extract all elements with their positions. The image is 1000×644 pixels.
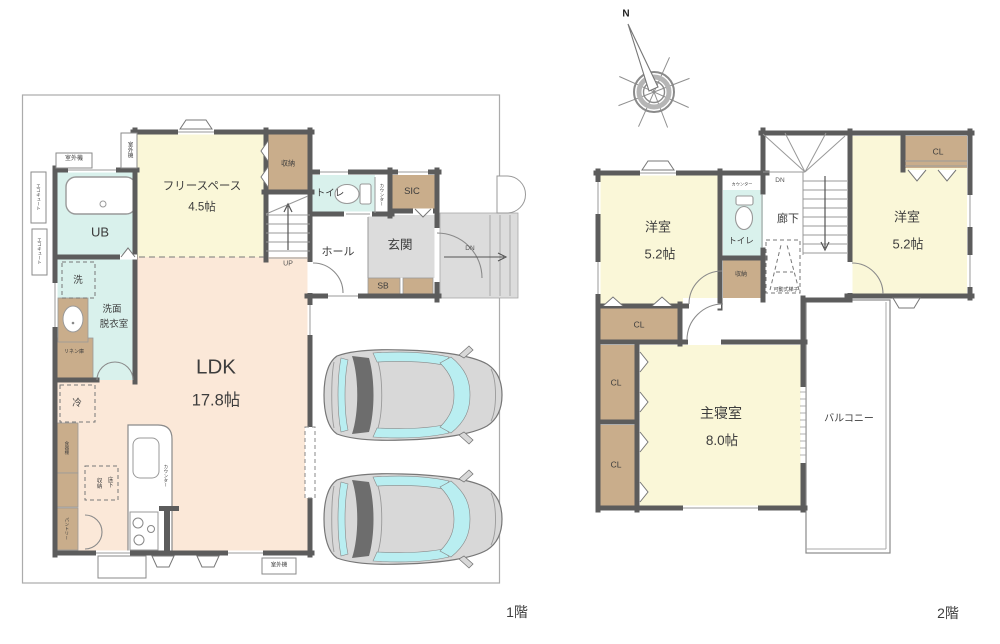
room-label-toilet-1f: トイレ: [316, 188, 345, 200]
counter-label-toilet-1f: カウンター: [379, 184, 385, 207]
linen-cabinet: [57, 338, 93, 380]
counter-label-toilet-2f: カウンター: [732, 181, 753, 186]
cl-label-horizontal: CL: [634, 319, 645, 330]
side-cabinet: [57, 473, 78, 507]
room-label-sb: SB: [377, 280, 388, 291]
room-label-hall: ホール: [322, 245, 355, 259]
compass: [619, 24, 690, 128]
fridge-label: 冷: [72, 398, 82, 410]
toilet-tank-1f: [360, 184, 371, 204]
room-size-master-bedroom: 8.0帖: [706, 432, 738, 450]
pantry-label: パントリー: [64, 518, 70, 541]
dn-label-stairs-2f: DN: [775, 177, 784, 185]
dn-label-porch: DN: [465, 245, 474, 253]
up-label-stairs-1f: UP: [283, 259, 293, 268]
room-size-west-bedroom: 5.2帖: [644, 247, 675, 264]
balcony: [806, 300, 890, 553]
floor-plan-page: 室外機 室外機 エコキュート エコキュート UB フリースペース 4.5帖 収納…: [0, 0, 1000, 644]
room-label-entrance: 玄関: [387, 237, 412, 253]
floor-plan-canvas: [0, 0, 1000, 644]
compass-north-label: N: [622, 8, 629, 21]
entrance-ornament: [497, 176, 526, 213]
floor-label-2f: 2階: [937, 604, 959, 622]
room-free-space: [135, 134, 266, 257]
counter-label-kitchen: カウンター: [163, 465, 169, 488]
room-size-east-bedroom: 5.2帖: [892, 237, 923, 254]
washroom-label-2: 脱衣室: [100, 319, 129, 331]
back-step: [98, 556, 146, 578]
kitchen-sink: [133, 438, 159, 478]
ecocute-label: エコキュート: [36, 184, 42, 211]
washer-label: 洗: [73, 275, 83, 287]
linen-label: リネン庫: [64, 349, 84, 356]
outdoor-unit-label: 室外機: [65, 156, 83, 164]
outdoor-unit-label: 室外機: [125, 142, 132, 159]
shoe-box-2: [403, 278, 433, 294]
room-label-free-space: フリースペース: [163, 180, 242, 195]
room-label-closet-1f: 収納: [281, 159, 295, 168]
parked-car-2: [324, 470, 502, 568]
washbasin-bowl: [63, 306, 83, 332]
room-label-toilet-2f: トイレ: [728, 235, 754, 246]
cl-label-master-1: CL: [611, 377, 622, 388]
toilet-bowl-2f: [736, 207, 753, 230]
washbasin-drain: [72, 322, 75, 325]
room-label-closet-2f: 収納: [735, 272, 747, 280]
floor-label-1f: 1階: [506, 603, 528, 621]
kitchen-wall-stub-v: [164, 506, 170, 553]
outdoor-unit-label: 室外機: [271, 562, 288, 569]
room-master-bedroom: [640, 345, 801, 506]
cl-label-east: CL: [933, 146, 944, 157]
room-label-balcony: バルコニー: [824, 413, 874, 426]
underfloor-label-2: 収納: [94, 478, 101, 489]
room-label-master-bedroom: 主寝室: [700, 404, 742, 422]
room-label-ub: UB: [91, 225, 109, 242]
room-west-bedroom: [598, 175, 720, 306]
bathtub: [66, 177, 136, 214]
shutter-window-1f: [305, 427, 315, 498]
room-label-west-bedroom: 洋室: [645, 220, 671, 237]
parked-car-1: [324, 346, 502, 444]
fixtures-2f: [736, 196, 754, 230]
room-label-hallway: 廊下: [777, 212, 799, 226]
room-size-ldk: 17.8帖: [192, 390, 241, 411]
ladder-label: 可動式梯子: [773, 287, 798, 294]
washroom-label-1: 洗面: [102, 304, 121, 316]
cl-label-master-2: CL: [611, 459, 622, 470]
entrance-porch: [440, 213, 518, 298]
room-label-ldk: LDK: [196, 355, 236, 382]
underfloor-label-1: 床下: [105, 477, 112, 488]
toilet-tank-2f: [736, 196, 753, 205]
room-label-east-bedroom: 洋室: [894, 210, 920, 227]
cupboard-label: 食器棚: [64, 441, 70, 455]
room-label-sic: SIC: [404, 186, 420, 198]
ecocute-label: エコキュート: [37, 238, 43, 265]
room-size-free-space: 4.5帖: [188, 201, 216, 216]
